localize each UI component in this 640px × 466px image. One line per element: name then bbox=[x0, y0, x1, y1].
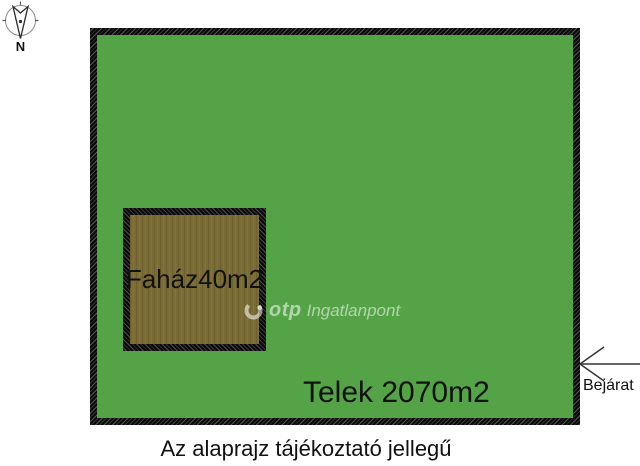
north-compass-icon: N bbox=[1, 0, 41, 54]
plot-area: Faház40m2 otp Ingatlanpont Telek 2070m2 bbox=[97, 35, 573, 418]
entrance-arrow-head-top bbox=[580, 347, 604, 364]
plot-boundary: Faház40m2 otp Ingatlanpont Telek 2070m2 bbox=[90, 28, 580, 425]
watermark-suffix: Ingatlanpont bbox=[307, 301, 401, 321]
disclaimer-caption: Az alaprajz tájékoztató jellegű bbox=[160, 436, 451, 462]
site-plan-canvas: N Faház40m2 otp Ingatlanpont Telek 2070m… bbox=[0, 0, 640, 466]
watermark: otp Ingatlanpont bbox=[243, 299, 400, 322]
house-area: Faház40m2 bbox=[130, 215, 259, 344]
house-boundary: Faház40m2 bbox=[123, 208, 266, 351]
watermark-brand: otp bbox=[269, 299, 302, 322]
compass-center-dot bbox=[19, 20, 22, 23]
plot-size-label: Telek 2070m2 bbox=[303, 376, 490, 410]
entrance-label: Bejárat bbox=[583, 377, 634, 395]
house-label: Faház40m2 bbox=[126, 264, 263, 295]
compass-north-label: N bbox=[16, 39, 25, 54]
